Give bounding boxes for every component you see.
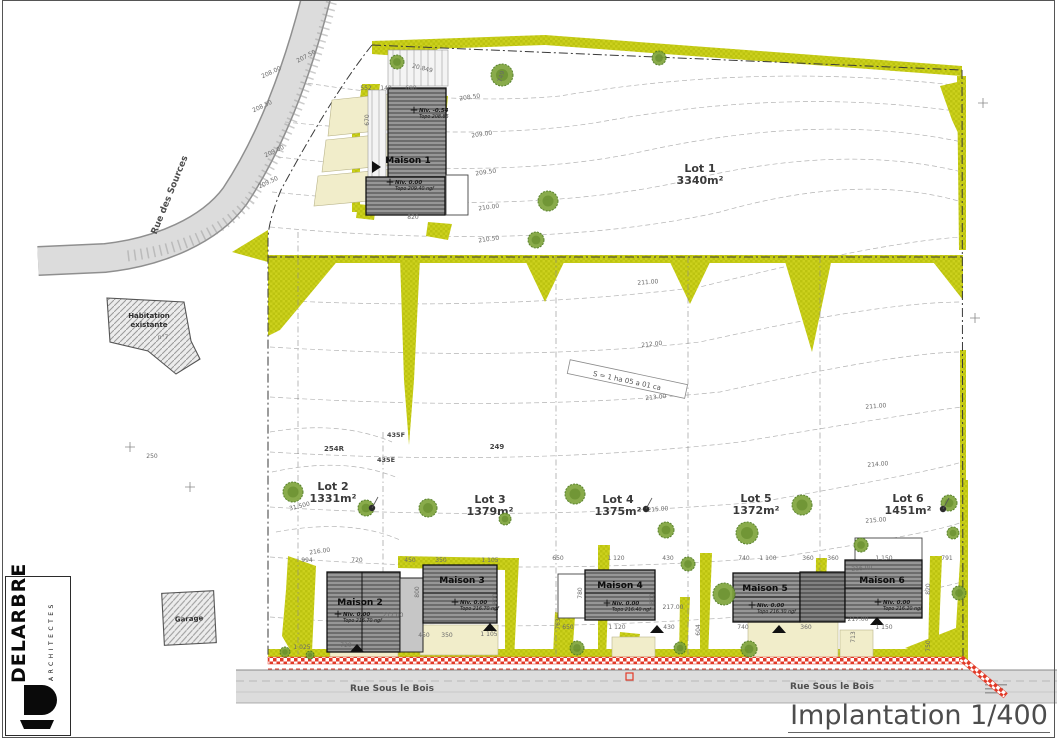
plan-label: 820 <box>925 583 932 595</box>
topo-m1: Topo 209.40 ngf <box>395 186 435 192</box>
topo-m5: Topo 216.30 ngf <box>757 609 797 615</box>
plan-label: 604 <box>695 624 702 636</box>
tree-icon <box>543 196 554 207</box>
plan-label: 210.00 <box>478 203 500 213</box>
plan-label: 1 105 <box>480 631 497 638</box>
plan-label: 740 <box>738 555 750 562</box>
tree-icon <box>573 644 581 652</box>
tree-icon <box>950 530 957 537</box>
maison-2-label: Maison 2 <box>337 598 382 608</box>
plan-label: 360 <box>802 555 814 562</box>
plan-label: 750 <box>925 640 932 652</box>
plan-label: 210.50 <box>478 235 500 245</box>
habitation-existante: Habitation existante n°7 <box>107 298 200 374</box>
street-rue-des-sources <box>38 0 333 261</box>
plan-label: 690 <box>405 85 417 92</box>
total-area-box: S = 1 ha 05 a 01 ca <box>567 360 687 399</box>
topo-m1-upper: Topo 208.86 <box>419 114 449 120</box>
plan-label: 140 <box>380 85 392 92</box>
plan-label: 450 <box>418 632 430 639</box>
plan-label: 250 <box>146 453 158 460</box>
plan-label: 211.00 <box>637 278 659 286</box>
plan-label: 450 <box>404 557 416 564</box>
tree-icon <box>655 54 663 62</box>
lot-5-area: 1372m² <box>733 504 780 517</box>
lot-2-area: 1331m² <box>310 492 357 505</box>
plan-label: 800 <box>414 586 421 598</box>
tree-icon <box>684 560 692 568</box>
topo-m4: Topo 216.40 ngf <box>612 607 652 613</box>
plan-label: 650 <box>552 555 564 562</box>
tree-icon <box>677 645 684 652</box>
garage-label: Garage <box>175 614 204 623</box>
plan-label: 800 <box>492 593 499 605</box>
plan-label: 720 <box>340 642 352 649</box>
plan-label: 720 <box>351 557 363 564</box>
plan-label: 1 120 <box>608 624 625 631</box>
plan-label: 820 <box>407 214 419 221</box>
maison-2: Maison 2 <box>327 572 423 652</box>
plan-label: 254R <box>324 445 345 453</box>
tree-icon <box>662 526 671 535</box>
plan-label: 713 <box>850 631 857 643</box>
plan-label: 360 <box>800 624 812 631</box>
niv-m2: Niv. 0.00 <box>343 612 370 618</box>
habitation-label-1: Habitation <box>128 312 170 320</box>
garage-existant: Garage <box>162 591 217 646</box>
survey-cross-icon <box>978 98 988 108</box>
drawing-sheet: Habitation existante n°7 Garage Maison 1… <box>0 0 1057 740</box>
plan-label: 216.00 <box>851 564 873 572</box>
plan-label: 211.00 <box>865 402 887 410</box>
plan-label: 350 <box>435 557 447 564</box>
plan-label: 763 <box>555 618 562 630</box>
plan-label: 208.50 <box>459 93 481 103</box>
niv-m1: Niv. 0.00 <box>395 180 422 186</box>
plan-label: 216.00 <box>309 547 331 557</box>
site-plan: Habitation existante n°7 Garage Maison 1… <box>0 0 1057 740</box>
plan-label: 650 <box>562 624 574 631</box>
plan-label: 1 105 <box>481 557 498 564</box>
street-label-rue-sous-le-bois-1: Rue Sous le Bois <box>350 684 434 694</box>
plan-label: 800 <box>649 593 656 605</box>
lot-1-area: 3340m² <box>677 174 724 187</box>
topo-m2: Topo 216.70 ngf <box>343 618 383 624</box>
plan-label: 780 <box>577 587 584 599</box>
tree-icon <box>288 487 299 498</box>
firm-logo-text: DELARBRE <box>8 579 30 683</box>
tree-icon <box>745 645 754 654</box>
tree-icon <box>955 589 963 597</box>
topo-m3: Topo 216.70 ngf <box>460 606 500 612</box>
plan-label: 215.00 <box>647 505 669 513</box>
title-block: DELARBRE ARCHITECTES <box>5 576 71 736</box>
firm-logo-icon <box>16 683 60 731</box>
maison-1-label: Maison 1 <box>385 156 430 166</box>
plan-label: 350 <box>441 632 453 639</box>
plan-label: 215.00 <box>865 516 887 524</box>
plan-label: 435E <box>377 456 395 464</box>
plan-label: 213.00 <box>645 393 667 402</box>
lot-6-area: 1451m² <box>885 504 932 517</box>
niv-m1-upper: Niv. -0.54 <box>419 108 449 114</box>
survey-cross-icon <box>970 313 980 323</box>
topo-m6: Topo 216.20 ngf <box>883 606 923 612</box>
maison-3-label: Maison 3 <box>439 576 484 586</box>
tree-icon <box>741 527 753 539</box>
plan-label: 740 <box>737 624 749 631</box>
maison-3: Maison 3 <box>423 565 497 631</box>
plan-label: 1 025 <box>293 644 310 651</box>
tree-icon <box>797 500 808 511</box>
plan-label: 212.00 <box>641 340 663 349</box>
plan-label: 430 <box>663 624 675 631</box>
plan-label: 552 <box>360 85 372 92</box>
tree-icon <box>308 653 312 657</box>
plan-label: 670 <box>364 114 371 126</box>
tree-icon <box>532 236 541 245</box>
plan-label: 360 <box>827 555 839 562</box>
plan-label: 791 <box>941 555 953 562</box>
tree-icon <box>393 58 401 66</box>
plan-label: 430 <box>662 555 674 562</box>
plan-label: 209.00 <box>471 130 493 140</box>
tree-icon <box>423 503 433 513</box>
street-label-rue-sous-le-bois-2: Rue Sous le Bois <box>790 682 874 692</box>
tree-icon <box>502 516 509 523</box>
entrance-arrow-m4 <box>650 625 664 633</box>
firm-logo-subtitle: ARCHITECTES <box>48 581 55 681</box>
plan-label: 994 <box>301 557 313 564</box>
plan-label: 214.00 <box>867 460 889 468</box>
drawing-title: Implantation 1/400 <box>788 700 1050 733</box>
plan-label: 1 150 <box>875 555 892 562</box>
niv-m4: Niv. 0.00 <box>612 601 639 607</box>
lot-4-area: 1375m² <box>595 505 642 518</box>
tree-icon <box>718 588 730 600</box>
plan-label: 1 100 <box>759 555 776 562</box>
plan-label: 217.00 <box>383 612 404 619</box>
plan-label: 1 120 <box>607 555 624 562</box>
tree-icon <box>570 489 581 500</box>
habitation-label-2: existante <box>131 321 168 329</box>
utility-pole-icon <box>372 497 378 508</box>
plan-label: 217.00 <box>663 604 684 611</box>
plan-label: 217.00 <box>848 616 869 623</box>
survey-cross-icon <box>125 442 135 452</box>
survey-cross-icon <box>185 482 195 492</box>
niv-m6: Niv. 0.00 <box>883 600 910 606</box>
maison-5-label: Maison 5 <box>742 584 787 594</box>
tree-icon <box>282 649 288 655</box>
maison-4-label: Maison 4 <box>597 581 642 591</box>
plan-label: 435F <box>387 431 405 439</box>
habitation-number: n°7 <box>158 334 169 341</box>
plan-label: 249 <box>490 443 505 451</box>
plan-label: 1 150 <box>875 624 892 631</box>
niv-m5: Niv. 0.00 <box>757 603 784 609</box>
maison-6-label: Maison 6 <box>859 576 904 586</box>
tree-icon <box>857 541 865 549</box>
plan-label: 209.50 <box>475 168 497 178</box>
niv-m3: Niv. 0.00 <box>460 600 487 606</box>
